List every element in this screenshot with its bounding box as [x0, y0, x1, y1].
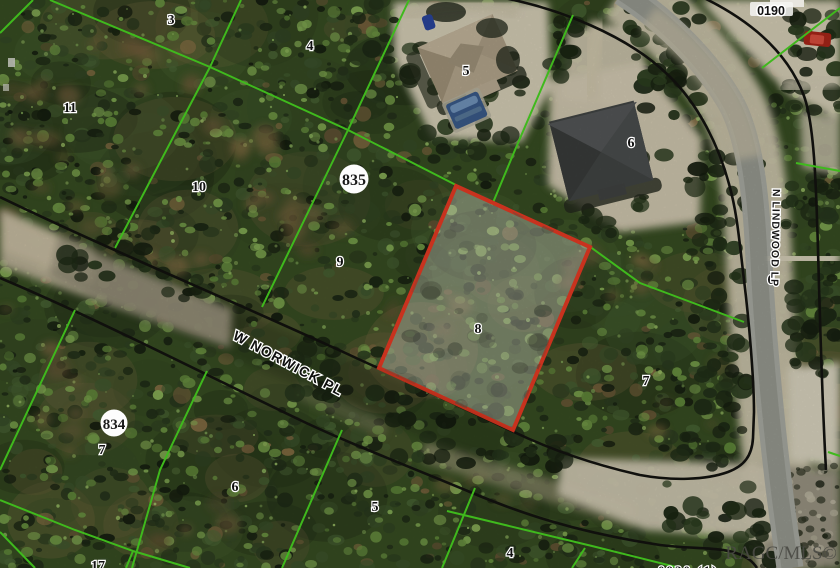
svg-text:4: 4 [307, 39, 314, 54]
svg-text:5: 5 [372, 500, 379, 515]
svg-text:RAGC/MLS©: RAGC/MLS© [725, 543, 837, 564]
svg-text:7: 7 [643, 374, 650, 389]
svg-text:3: 3 [168, 13, 175, 28]
svg-text:0190: 0190 [757, 4, 785, 18]
svg-text:17: 17 [91, 559, 105, 568]
svg-text:11: 11 [63, 101, 76, 116]
svg-text:0930 (1): 0930 (1) [658, 563, 718, 568]
svg-text:8: 8 [475, 322, 482, 337]
svg-text:6: 6 [232, 480, 239, 495]
svg-text:835: 835 [342, 172, 366, 189]
svg-text:N LINDWOOD LP: N LINDWOOD LP [768, 189, 782, 287]
svg-text:834: 834 [103, 417, 126, 433]
svg-text:9: 9 [337, 255, 344, 270]
svg-text:7: 7 [99, 443, 106, 458]
svg-text:4: 4 [507, 546, 514, 561]
svg-text:10: 10 [192, 180, 206, 195]
svg-text:5: 5 [463, 64, 470, 79]
svg-text:6: 6 [628, 136, 635, 151]
